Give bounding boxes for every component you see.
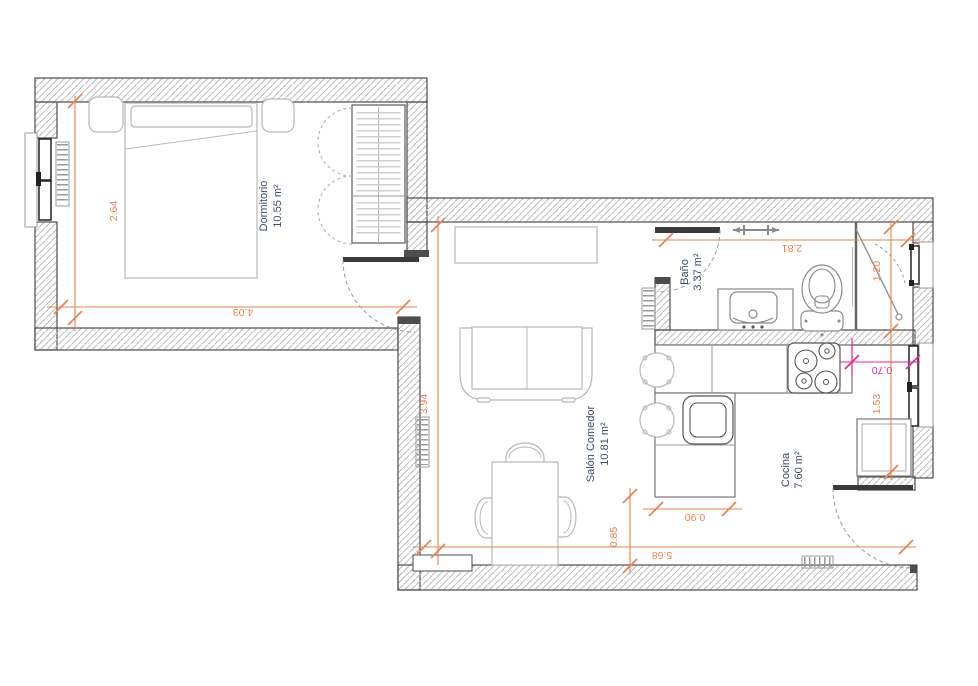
toilet xyxy=(801,265,843,337)
bathroom-door xyxy=(655,225,779,292)
room-area-dormitorio: 10.55 m² xyxy=(272,184,284,228)
dim-value: 0.85 xyxy=(608,527,620,548)
dim-peninsula-width: 0.90 xyxy=(643,502,742,523)
bed-pillows xyxy=(131,106,252,127)
dim-bottom-width: 5.68 xyxy=(413,540,916,561)
kitchen-sink xyxy=(683,396,733,444)
dim-bath-width: 2.81 xyxy=(652,233,920,254)
dining-chair-top xyxy=(506,443,544,463)
room-area-cocina: 7.60 m² xyxy=(793,451,805,489)
dim-value: 1.53 xyxy=(871,394,883,415)
sideboard xyxy=(455,227,597,263)
wall-segment xyxy=(35,102,57,138)
slide-direction-icon xyxy=(733,225,779,235)
towel-radiator xyxy=(642,288,655,329)
wall-niche xyxy=(413,555,472,571)
wall-segment xyxy=(398,317,420,590)
fridge xyxy=(857,419,911,476)
wall-segment xyxy=(35,328,398,350)
wall-segment xyxy=(398,565,917,590)
dim-value: 0.70 xyxy=(872,364,893,376)
sofa xyxy=(460,327,592,402)
wardrobe xyxy=(318,105,405,244)
wall-segment xyxy=(407,222,427,252)
dining-table xyxy=(492,462,558,565)
bedroom-radiator xyxy=(56,142,69,206)
room-area-salon: 10.81 m² xyxy=(599,422,611,466)
wall-segment xyxy=(913,425,933,478)
vanity-sink xyxy=(718,289,793,330)
bathroom-fixtures xyxy=(718,265,843,337)
shower-window xyxy=(909,242,933,288)
kitchen-furniture xyxy=(640,343,911,568)
room-label-cocina: Cocina xyxy=(780,452,792,487)
room-label-dormitorio: Dormitorio xyxy=(258,181,270,232)
dim-value: 5.68 xyxy=(652,549,673,561)
nightstand-left xyxy=(89,97,123,132)
floor-plan-drawing: 2.64 4.03 3.94 2.81 1.20 xyxy=(0,0,978,686)
dim-value: 0.90 xyxy=(685,511,706,523)
entry-door xyxy=(833,485,913,568)
wardrobe-folding-doors xyxy=(318,108,352,244)
wall-segment xyxy=(655,330,915,345)
room-area-bano: 3.37 m² xyxy=(692,253,704,291)
dim-value: 2.64 xyxy=(108,201,120,222)
hob xyxy=(788,343,840,393)
wall-cap xyxy=(404,250,429,257)
bed xyxy=(125,103,257,278)
dim-bedroom-width: 4.03 xyxy=(47,300,417,318)
wall-segment xyxy=(655,278,670,330)
dim-value: 1.20 xyxy=(871,261,883,282)
wall-cap xyxy=(655,277,670,284)
floor-plan: 2.64 4.03 3.94 2.81 1.20 xyxy=(0,0,978,686)
dim-value: 3.94 xyxy=(418,394,430,415)
dim-shower-width: 1.20 xyxy=(871,220,898,338)
nightstand-right xyxy=(262,99,294,132)
room-label-bano: Baño xyxy=(679,259,691,285)
wall-segment xyxy=(407,198,933,222)
stool xyxy=(640,403,674,437)
bedroom-window xyxy=(25,133,51,227)
dim-table-clearance: 0.85 xyxy=(608,488,637,574)
bedroom-furniture xyxy=(56,97,405,278)
wall-segment xyxy=(913,287,933,345)
room-label-salon: Salón Comedor xyxy=(585,405,597,482)
dim-salon-depth: 3.94 xyxy=(418,216,445,565)
wall-cap xyxy=(398,317,420,324)
dim-value: 2.81 xyxy=(782,242,803,254)
stool xyxy=(640,353,674,387)
dim-value: 4.03 xyxy=(233,306,254,318)
salon-furniture xyxy=(416,227,655,565)
wall-cap xyxy=(910,565,917,573)
